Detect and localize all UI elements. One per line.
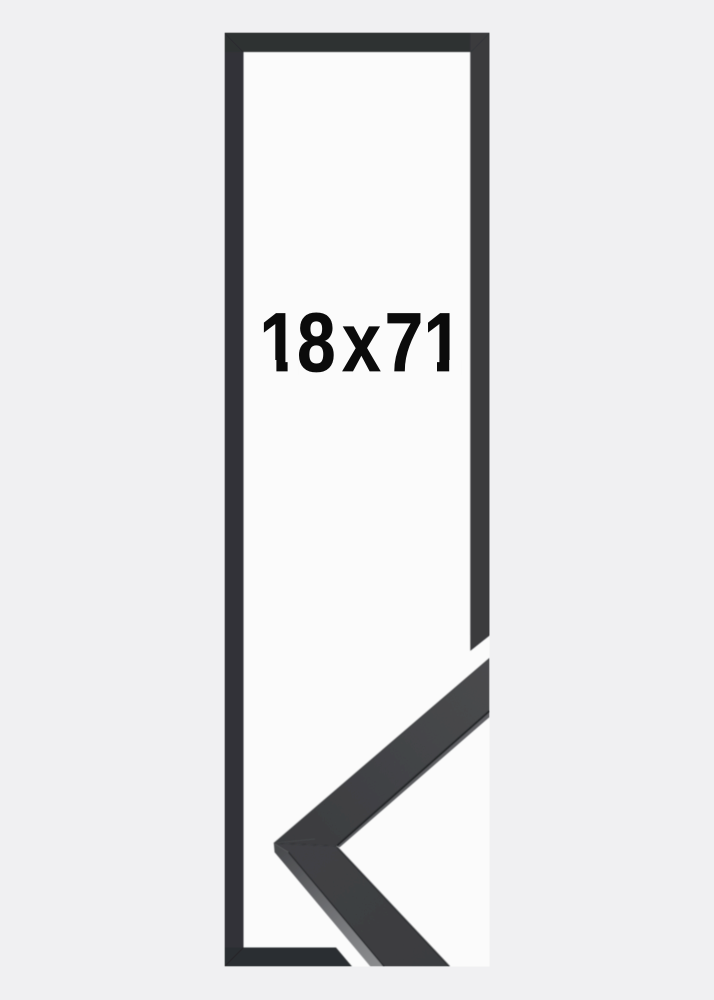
svg-text:1: 1	[424, 296, 462, 390]
svg-text:1: 1	[260, 296, 298, 390]
svg-text:8: 8	[297, 296, 335, 390]
svg-text:x: x	[342, 296, 381, 390]
svg-text:7: 7	[385, 296, 423, 390]
